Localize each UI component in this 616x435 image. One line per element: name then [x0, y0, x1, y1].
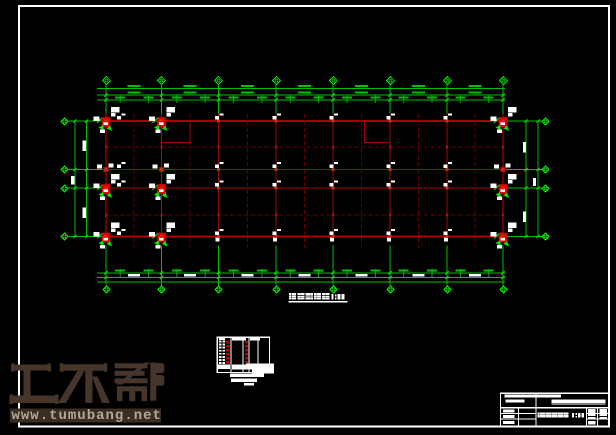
svg-text:www.tumubang.net: www.tumubang.net [12, 408, 162, 424]
